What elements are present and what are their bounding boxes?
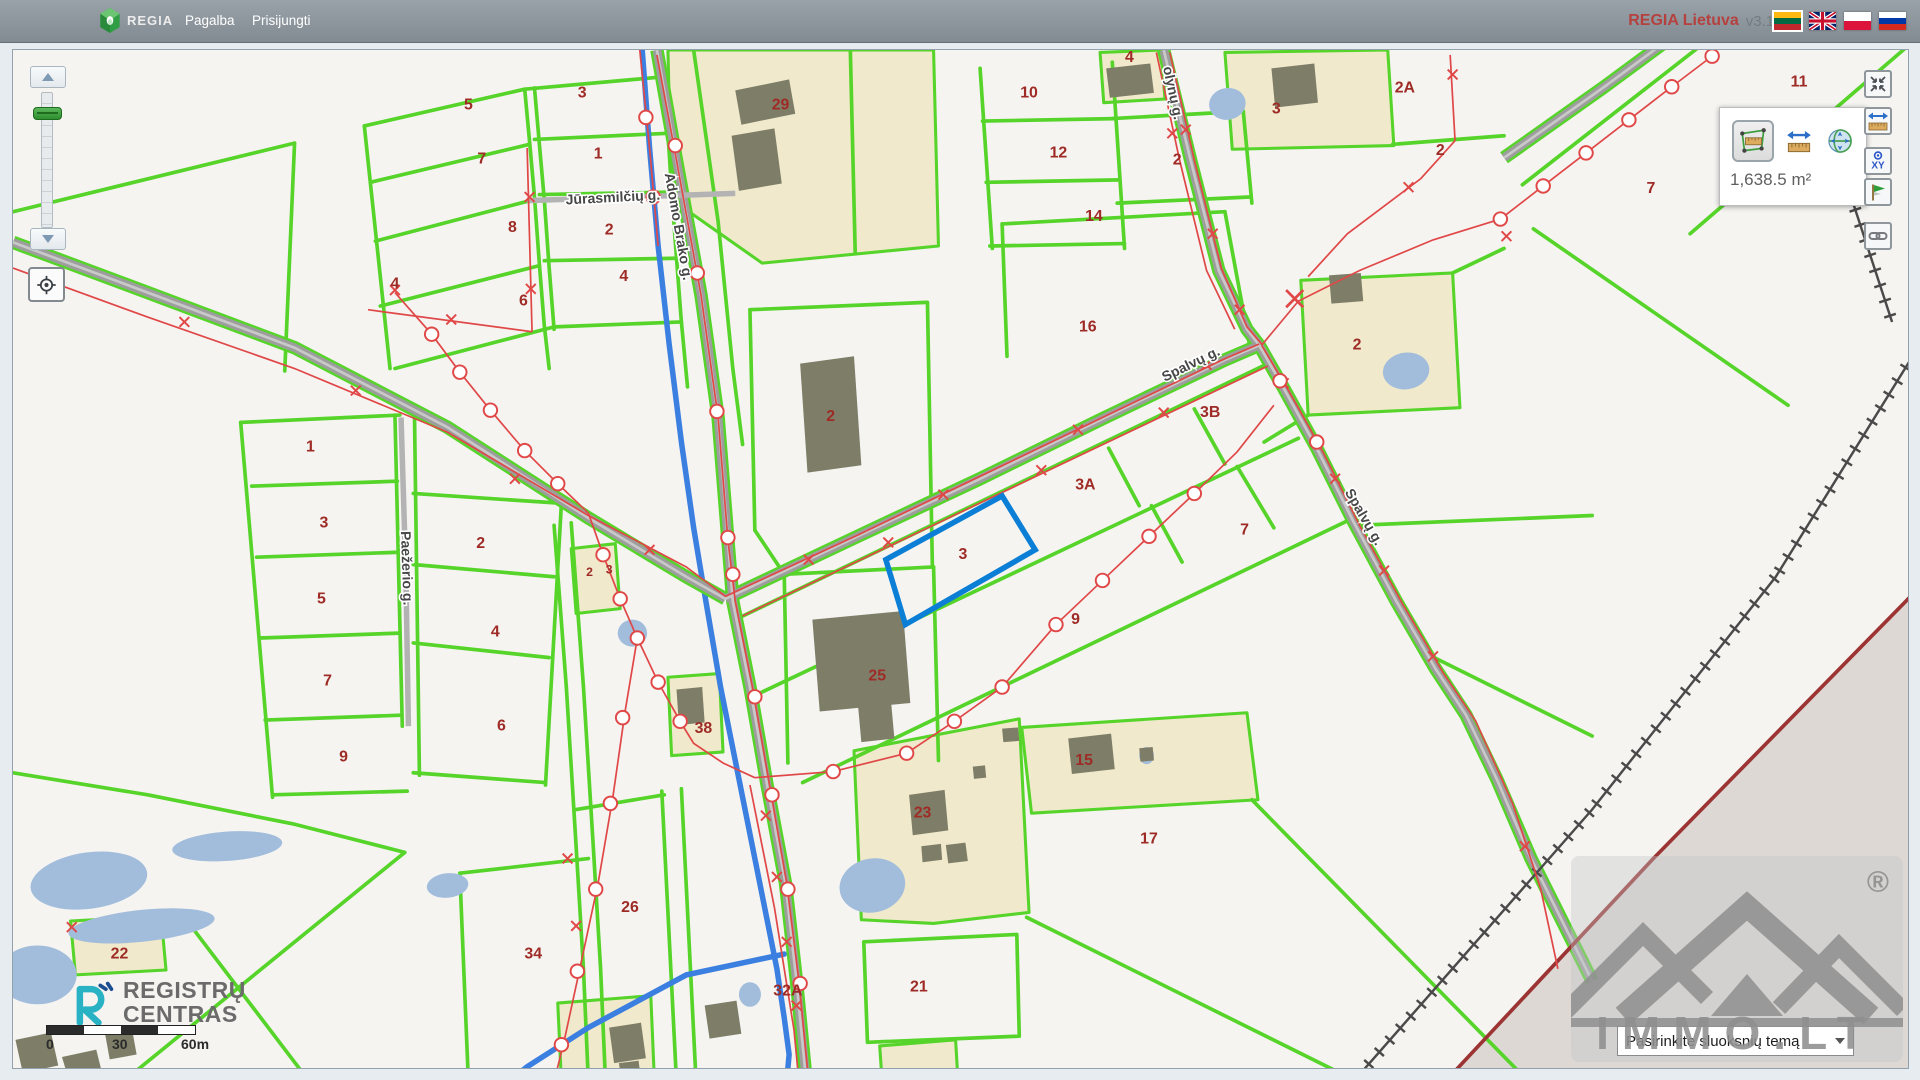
zoom-out-button[interactable] <box>30 228 66 250</box>
svg-text:3: 3 <box>606 562 613 576</box>
svg-text:4: 4 <box>491 623 500 640</box>
svg-text:XY: XY <box>1871 161 1885 172</box>
svg-text:7: 7 <box>323 672 332 689</box>
svg-text:2: 2 <box>476 535 485 552</box>
scale-bar-track <box>46 1025 196 1035</box>
brand-name: REGIA <box>127 13 173 28</box>
svg-text:8: 8 <box>508 219 517 236</box>
share-link-button[interactable] <box>1864 222 1892 250</box>
svg-text:7: 7 <box>477 151 486 168</box>
measurement-tools <box>1720 108 1866 162</box>
rc-logo-line1: REGISTRŲ <box>123 978 246 1002</box>
svg-text:2: 2 <box>586 565 593 579</box>
chevron-down-icon <box>1835 1038 1845 1044</box>
svg-text:9: 9 <box>339 748 348 765</box>
xy-coordinates-button[interactable]: XY <box>1864 147 1892 175</box>
svg-text:3B: 3B <box>1200 404 1220 421</box>
svg-text:3: 3 <box>1272 100 1281 117</box>
map-scale-bar: 0 30 60m <box>46 1025 216 1051</box>
svg-text:5: 5 <box>464 97 473 114</box>
registru-centras-logo: REGISTRŲ CENTRAS <box>65 978 246 1030</box>
svg-text:2A: 2A <box>1395 79 1416 96</box>
flag-lithuania[interactable] <box>1774 12 1801 30</box>
svg-text:9: 9 <box>1071 611 1080 628</box>
arrow-down-icon <box>42 235 54 243</box>
svg-text:14: 14 <box>1085 208 1103 225</box>
zoom-in-button[interactable] <box>30 66 66 88</box>
svg-text:5: 5 <box>317 590 326 607</box>
area-measure-tool-button[interactable] <box>1732 120 1774 162</box>
distance-measure-icon <box>1786 128 1812 154</box>
svg-text:Paežerio g.: Paežerio g. <box>398 531 417 606</box>
svg-text:16: 16 <box>1079 318 1097 335</box>
globe-tool-button[interactable] <box>1824 125 1856 157</box>
svg-text:6: 6 <box>497 718 506 735</box>
svg-text:22: 22 <box>111 946 129 963</box>
fit-extent-button[interactable] <box>1864 70 1892 98</box>
rc-logo-line2: CENTRAS <box>123 1002 246 1026</box>
registru-centras-r-icon <box>65 978 117 1030</box>
svg-text:11: 11 <box>1791 73 1808 90</box>
arrow-up-icon <box>42 73 54 81</box>
area-measure-icon <box>1738 126 1768 156</box>
svg-text:25: 25 <box>868 667 886 684</box>
scale-label-30: 30 <box>112 1036 128 1052</box>
layer-select-placeholder: Pasirinkite sluoksnių temą <box>1626 1033 1835 1050</box>
chain-link-icon <box>1867 225 1889 247</box>
crosshair-target-icon <box>36 273 57 297</box>
measurement-panel: 1,638.5 m² <box>1719 107 1867 206</box>
flag-united-kingdom[interactable] <box>1809 12 1836 30</box>
scale-label-60m: 60m <box>181 1036 209 1052</box>
svg-text:3: 3 <box>959 546 968 563</box>
locate-me-button[interactable] <box>28 267 65 302</box>
svg-text:3: 3 <box>578 84 587 101</box>
zoom-slider-handle[interactable] <box>33 107 62 120</box>
svg-text:2: 2 <box>605 222 614 239</box>
flag-marker-button[interactable] <box>1864 178 1892 206</box>
xy-coordinates-icon: XY <box>1867 150 1889 172</box>
regia-logo[interactable]: REGIA <box>98 7 173 34</box>
menu-pagalba[interactable]: Pagalba <box>185 13 235 28</box>
svg-text:15: 15 <box>1075 752 1093 769</box>
distance-measure-tool-button[interactable] <box>1783 125 1815 157</box>
measure-button[interactable] <box>1864 107 1892 135</box>
svg-text:4: 4 <box>619 268 628 285</box>
svg-text:4: 4 <box>391 275 400 292</box>
regia-gem-icon <box>98 7 122 34</box>
svg-text:2: 2 <box>826 408 835 425</box>
svg-text:26: 26 <box>621 899 639 916</box>
svg-text:2: 2 <box>1353 337 1362 354</box>
globe-icon <box>1826 127 1854 155</box>
svg-text:38: 38 <box>695 720 713 737</box>
svg-text:7: 7 <box>1646 180 1655 197</box>
svg-text:7: 7 <box>1240 522 1249 539</box>
svg-text:6: 6 <box>519 293 528 310</box>
svg-text:17: 17 <box>1140 830 1158 847</box>
svg-text:1: 1 <box>594 146 603 163</box>
flag-poland[interactable] <box>1844 12 1871 30</box>
svg-text:21: 21 <box>910 979 928 996</box>
green-flag-icon <box>1867 181 1889 203</box>
svg-text:10: 10 <box>1020 84 1038 101</box>
svg-text:2: 2 <box>1436 142 1445 159</box>
top-navigation-bar: REGIA Pagalba Prisijungti REGIA Lietuva … <box>0 0 1920 43</box>
ruler-arrows-icon <box>1867 110 1889 132</box>
svg-text:1: 1 <box>306 438 315 455</box>
collapse-arrows-icon <box>1868 74 1888 94</box>
svg-text:29: 29 <box>772 97 790 114</box>
svg-text:23: 23 <box>914 805 932 822</box>
app-title: REGIA Lietuva <box>1628 12 1739 30</box>
app-title-block: REGIA Lietuva v3.17.1 <box>1628 0 1795 42</box>
svg-text:12: 12 <box>1050 144 1068 161</box>
svg-text:3: 3 <box>320 514 329 531</box>
svg-text:4: 4 <box>1125 50 1134 66</box>
map-viewport[interactable]: Jūrasmilčių g.Adomo Brako g.Paežerio g.S… <box>12 49 1909 1069</box>
menu-prisijungti[interactable]: Prisijungti <box>252 13 311 28</box>
svg-text:2: 2 <box>1173 152 1182 169</box>
measured-area-value: 1,638.5 m² <box>1720 162 1866 190</box>
svg-text:3A: 3A <box>1075 476 1096 493</box>
flag-russia[interactable] <box>1879 12 1906 30</box>
svg-text:32A: 32A <box>773 982 803 999</box>
svg-text:34: 34 <box>524 946 542 963</box>
scale-label-0: 0 <box>46 1036 54 1052</box>
svg-text:Jūrasmilčių g.: Jūrasmilčių g. <box>565 187 660 208</box>
language-switcher <box>1774 0 1920 42</box>
layer-theme-select[interactable]: Pasirinkite sluoksnių temą <box>1617 1026 1854 1056</box>
